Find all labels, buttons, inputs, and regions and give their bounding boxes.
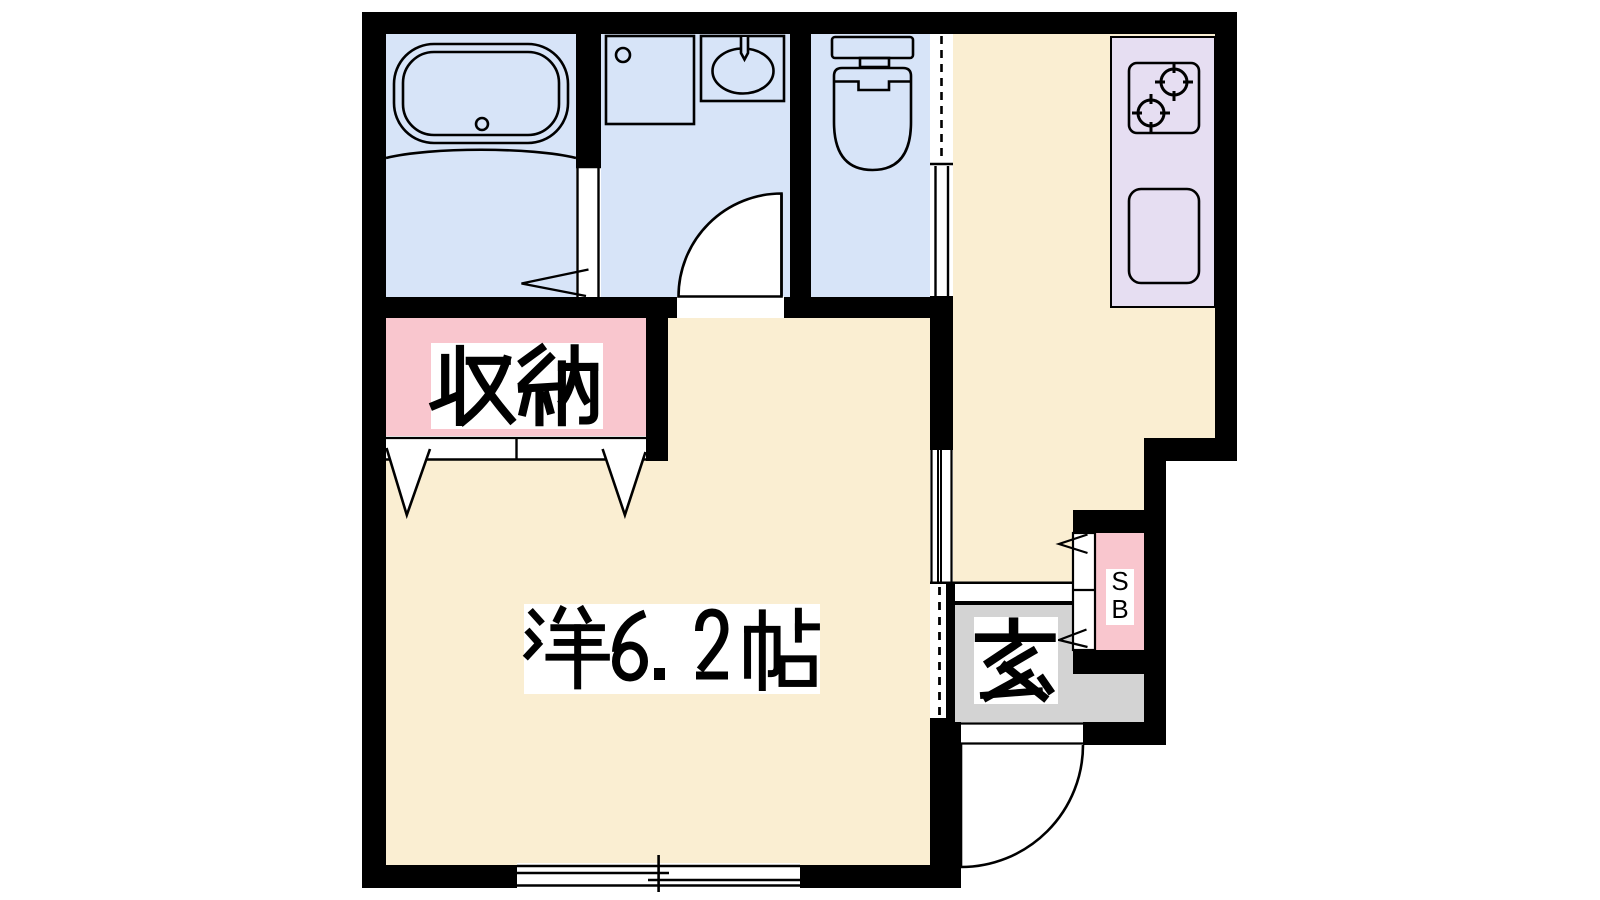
svg-text:B: B (1111, 594, 1128, 624)
svg-text:S: S (1111, 566, 1128, 596)
